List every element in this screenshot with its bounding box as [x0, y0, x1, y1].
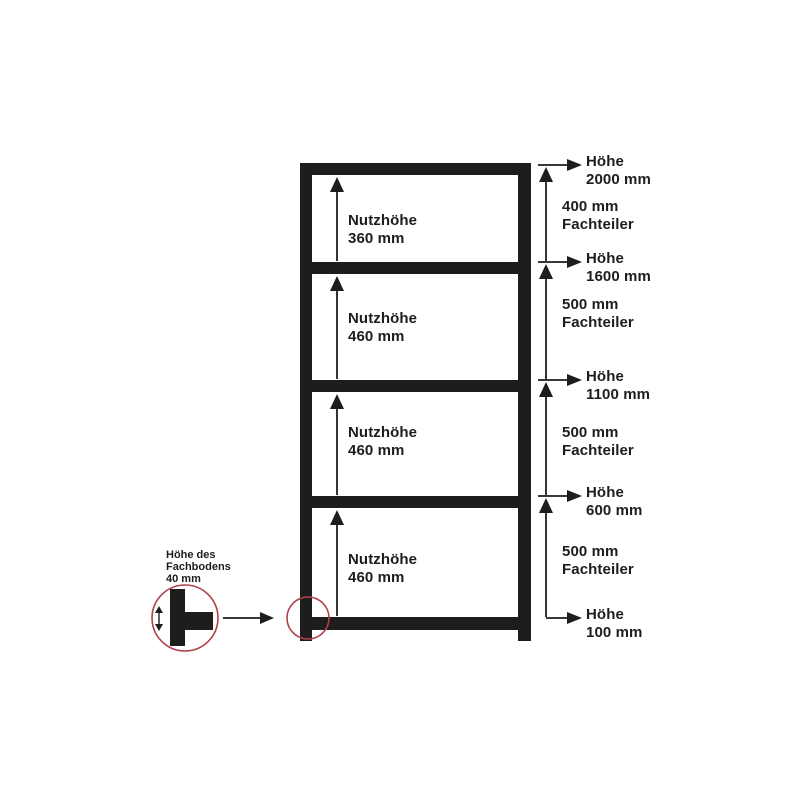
- nutzhoehe-value-1: 360 mm: [348, 230, 404, 247]
- arrow-up-icon: [330, 276, 344, 291]
- arrow-right-icon: [567, 374, 582, 386]
- fachteiler-400-word: Fachteiler: [562, 216, 634, 233]
- left-post: [300, 163, 312, 641]
- right-post: [518, 163, 531, 641]
- diagram-page: Nutzhöhe 360 mm Nutzhöhe 460 mm Nutzhöhe…: [0, 0, 800, 800]
- arrow-up-icon: [539, 498, 553, 513]
- hoehe-2000-word: Höhe: [586, 153, 624, 170]
- level-1100: [538, 374, 582, 386]
- hoehe-1600-word: Höhe: [586, 250, 624, 267]
- segment-500mm-2: [539, 382, 553, 495]
- shelf-beam-3: [312, 380, 518, 392]
- arrow-up-icon: [539, 264, 553, 279]
- arrow-up-icon: [539, 382, 553, 397]
- nutzhoehe-label-1: Nutzhöhe: [348, 212, 417, 229]
- board-thickness-arrow: [155, 606, 163, 631]
- level-600: [538, 490, 582, 502]
- clear-height-arrows: [330, 177, 344, 616]
- hoehe-1600-value: 1600 mm: [586, 268, 651, 285]
- fachteiler-400-value: 400 mm: [562, 198, 618, 215]
- segment-500mm-1: [539, 264, 553, 379]
- hoehe-100-value: 100 mm: [586, 624, 642, 641]
- nutzhoehe-arrow-2: [330, 276, 344, 379]
- detail-connector-arrow: [223, 612, 274, 624]
- nutzhoehe-arrow-3: [330, 394, 344, 495]
- bottom-shelf-beam: [312, 617, 518, 630]
- level-2000: [538, 159, 582, 171]
- nutzhoehe-label-2: Nutzhöhe: [348, 310, 417, 327]
- top-shelf-beam: [300, 163, 531, 175]
- segment-400mm: [539, 167, 553, 261]
- detail-post-section: [170, 589, 185, 646]
- nutzhoehe-label-3: Nutzhöhe: [348, 424, 417, 441]
- level-100: [546, 612, 582, 624]
- fachteiler-500a-word: Fachteiler: [562, 314, 634, 331]
- arrow-right-icon: [567, 256, 582, 268]
- hoehe-2000-value: 2000 mm: [586, 171, 651, 188]
- detail-board-section: [185, 612, 213, 630]
- shelf-beam-2: [312, 262, 518, 274]
- arrow-up-icon: [330, 394, 344, 409]
- detail-label-line3: 40 mm: [166, 573, 201, 585]
- arrow-right-icon: [567, 612, 582, 624]
- hoehe-1100-value: 1100 mm: [586, 386, 650, 403]
- shelf-beam-4: [312, 496, 518, 508]
- arrow-right-icon: [567, 159, 582, 171]
- hoehe-1100-word: Höhe: [586, 368, 624, 385]
- arrow-up-icon: [539, 167, 553, 182]
- nutzhoehe-arrow-1: [330, 177, 344, 261]
- arrow-right-icon: [567, 490, 582, 502]
- arrow-up-icon: [330, 510, 344, 525]
- segment-500mm-3: [539, 498, 553, 617]
- hoehe-600-word: Höhe: [586, 484, 624, 501]
- arrow-up-icon: [155, 606, 163, 613]
- fachteiler-500b-word: Fachteiler: [562, 442, 634, 459]
- nutzhoehe-label-4: Nutzhöhe: [348, 551, 417, 568]
- arrow-up-icon: [330, 177, 344, 192]
- detail-label-line2: Fachbodens: [166, 561, 231, 573]
- nutzhoehe-value-2: 460 mm: [348, 328, 404, 345]
- nutzhoehe-arrow-4: [330, 510, 344, 616]
- fachteiler-500a-value: 500 mm: [562, 296, 618, 313]
- nutzhoehe-value-4: 460 mm: [348, 569, 404, 586]
- hoehe-100-word: Höhe: [586, 606, 624, 623]
- detail-label-line1: Höhe des: [166, 549, 216, 561]
- shelf-dimension-diagram: Nutzhöhe 360 mm Nutzhöhe 460 mm Nutzhöhe…: [0, 0, 800, 800]
- fachteiler-500c-value: 500 mm: [562, 543, 618, 560]
- level-1600: [538, 256, 582, 268]
- divider-dimension-segments: [539, 167, 553, 617]
- arrow-right-icon: [260, 612, 274, 624]
- hoehe-600-value: 600 mm: [586, 502, 642, 519]
- fachteiler-500b-value: 500 mm: [562, 424, 618, 441]
- nutzhoehe-value-3: 460 mm: [348, 442, 404, 459]
- fachteiler-500c-word: Fachteiler: [562, 561, 634, 578]
- arrow-down-icon: [155, 624, 163, 631]
